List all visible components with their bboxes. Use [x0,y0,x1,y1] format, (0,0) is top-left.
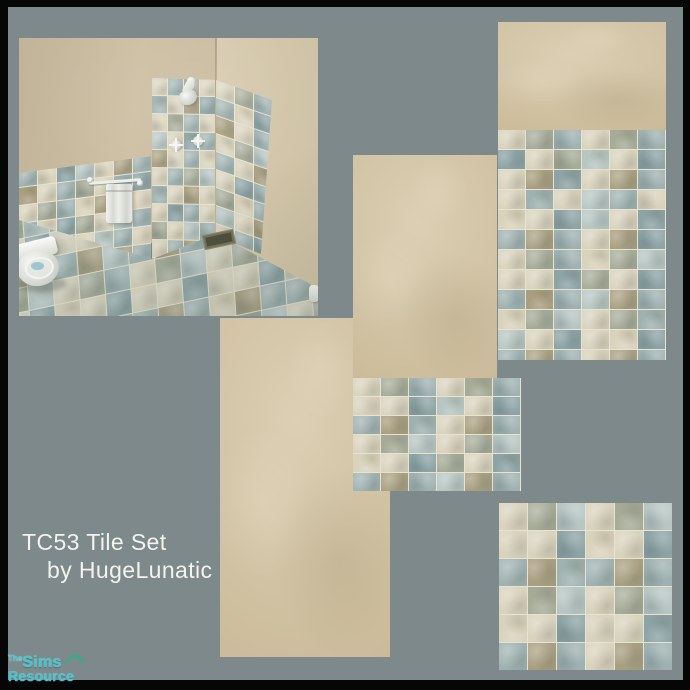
tile [499,643,527,670]
tile [498,250,525,269]
tile [554,330,581,349]
tile [381,435,408,453]
tile [526,170,553,189]
tile [554,350,581,360]
tsr-logo: TheSims Resource [8,653,86,683]
tile [638,250,665,269]
tile [526,290,553,309]
preview-card: TC53 Tile Set by HugeLunatic TheSims Res… [0,0,690,690]
tile [493,435,520,453]
tile [557,559,585,586]
tile [106,290,132,316]
tile [381,397,408,415]
tile [582,270,609,289]
tile [557,615,585,642]
tile [526,130,553,149]
tile [586,643,614,670]
tile [526,210,553,229]
tile [19,186,37,205]
tile [557,643,585,670]
logo-the-label: The [8,654,22,663]
tile [582,190,609,209]
tile [610,170,637,189]
tile [582,230,609,249]
tile [526,190,553,209]
towel-bar-end-left [87,177,93,183]
tile [353,416,380,434]
tile [554,210,581,229]
tile [498,230,525,249]
tile [184,169,199,186]
tile [526,310,553,329]
tile [615,643,643,670]
tile [499,587,527,614]
faucet-handle-right [191,134,205,148]
tile [152,96,167,113]
tile [499,531,527,558]
tile [57,181,75,200]
tile [610,230,637,249]
tile [184,151,199,168]
tile [586,587,614,614]
tile [644,559,672,586]
tile [554,250,581,269]
tile [498,190,525,209]
tile [409,454,436,472]
tile [638,230,665,249]
tile [498,270,525,289]
tile [528,615,556,642]
tile [437,416,464,434]
tile [493,416,520,434]
tile [76,215,94,234]
tile [615,615,643,642]
tile [638,170,665,189]
tile [582,290,609,309]
tile [200,97,215,114]
tile [76,197,94,216]
tile [557,587,585,614]
tile [200,187,215,204]
tile [168,114,183,131]
tile [615,503,643,530]
tile [465,454,492,472]
tile [409,435,436,453]
tile [554,310,581,329]
logo-sims-label: Sims [22,654,61,671]
tile [38,183,56,202]
tile [437,473,464,491]
tile [526,150,553,169]
tile [610,330,637,349]
tile [615,587,643,614]
tile [133,226,151,245]
roof-icon [64,653,86,665]
tile [528,559,556,586]
tile [184,223,199,240]
tile [582,170,609,189]
tile [610,190,637,209]
wainscot-swatch-tile-part [498,130,666,360]
bathroom-render [19,38,318,316]
tile [437,378,464,396]
tile [526,350,553,360]
tile [644,615,672,642]
tile [437,454,464,472]
tile [638,350,665,360]
tile [200,79,215,96]
tile [152,114,167,131]
tile [610,310,637,329]
tile [554,130,581,149]
tile [582,310,609,329]
swatch-wall-with-wainscot [498,22,666,360]
tile [465,416,492,434]
tile [200,169,215,186]
tile [610,270,637,289]
tile [409,397,436,415]
tile [610,130,637,149]
tile [168,186,183,203]
tile [498,210,525,229]
tile [557,531,585,558]
tile [498,170,525,189]
tile [498,310,525,329]
tile [526,250,553,269]
tile [610,350,637,360]
tile [554,230,581,249]
tile [184,205,199,222]
tile [554,290,581,309]
tile [168,204,183,221]
tile [168,222,183,239]
tile [554,270,581,289]
tile [493,454,520,472]
tile [465,435,492,453]
tile [638,290,665,309]
tile [493,378,520,396]
tile [526,330,553,349]
tile [554,190,581,209]
tile [168,168,183,185]
swatch-plain-wall-medium [353,155,497,380]
tile [437,435,464,453]
tile [381,454,408,472]
tile [19,204,37,223]
tile [353,397,380,415]
tile [638,310,665,329]
tile [610,150,637,169]
tile [498,150,525,169]
tile [465,397,492,415]
tile [644,503,672,530]
tile [586,503,614,530]
wall-fixture-partial [309,285,318,302]
tile [152,168,167,185]
tile [493,473,520,491]
tile [554,170,581,189]
tile [554,150,581,169]
tile [638,150,665,169]
tile [152,186,167,203]
tile [465,473,492,491]
tile [152,150,167,167]
tile [582,330,609,349]
tile [353,454,380,472]
tile [638,190,665,209]
tile [499,503,527,530]
tile [409,378,436,396]
tile [200,151,215,168]
tile [644,643,672,670]
tile [498,290,525,309]
tile [557,503,585,530]
swatch-floor-tiles [499,503,672,672]
tile [493,397,520,415]
tile [586,615,614,642]
tile [582,250,609,269]
tile [499,559,527,586]
tile [114,228,132,247]
towel [106,184,132,223]
set-title: TC53 Tile Set by HugeLunatic [22,528,212,584]
towel-bar-end-right [137,180,143,186]
tile [209,292,235,316]
tile [528,503,556,530]
tile [638,330,665,349]
tile [526,270,553,289]
tile [409,473,436,491]
tile [615,531,643,558]
tile [528,531,556,558]
tile [184,115,199,132]
tile [586,531,614,558]
tile [610,250,637,269]
tile [409,416,436,434]
logo-resource-label: Resource [8,669,86,683]
tile [38,201,56,220]
tile [381,416,408,434]
tile [644,531,672,558]
tile [498,130,525,149]
tile [184,187,199,204]
tile [528,587,556,614]
tile [57,199,75,218]
tile [638,210,665,229]
faucet-handle-left [169,138,183,152]
tile [610,210,637,229]
tile [133,208,151,227]
tile [200,205,215,222]
tile [610,290,637,309]
tile [353,378,380,396]
set-author-line: by HugeLunatic [47,556,212,584]
tile [586,559,614,586]
tile [582,150,609,169]
tile [499,615,527,642]
set-title-line1: TC53 Tile Set [22,528,212,556]
tile [526,230,553,249]
tile [582,210,609,229]
tile [465,378,492,396]
tile [638,130,665,149]
tile [152,204,167,221]
tile [644,587,672,614]
tile [582,350,609,360]
tile [582,130,609,149]
tile [168,150,183,167]
tile [19,311,30,316]
tile [381,378,408,396]
tile [498,330,525,349]
tile [200,115,215,132]
wainscot-swatch-plain-part [498,22,666,130]
tile [528,643,556,670]
tile [638,270,665,289]
tile [353,473,380,491]
tile [152,132,167,149]
tile [353,435,380,453]
tile [381,473,408,491]
tile [152,222,167,239]
tile [437,397,464,415]
tile [498,350,525,360]
swatch-wall-tiles [353,378,521,493]
tile [152,78,167,95]
tile [615,559,643,586]
tile [133,190,151,209]
toilet-water [31,262,44,270]
